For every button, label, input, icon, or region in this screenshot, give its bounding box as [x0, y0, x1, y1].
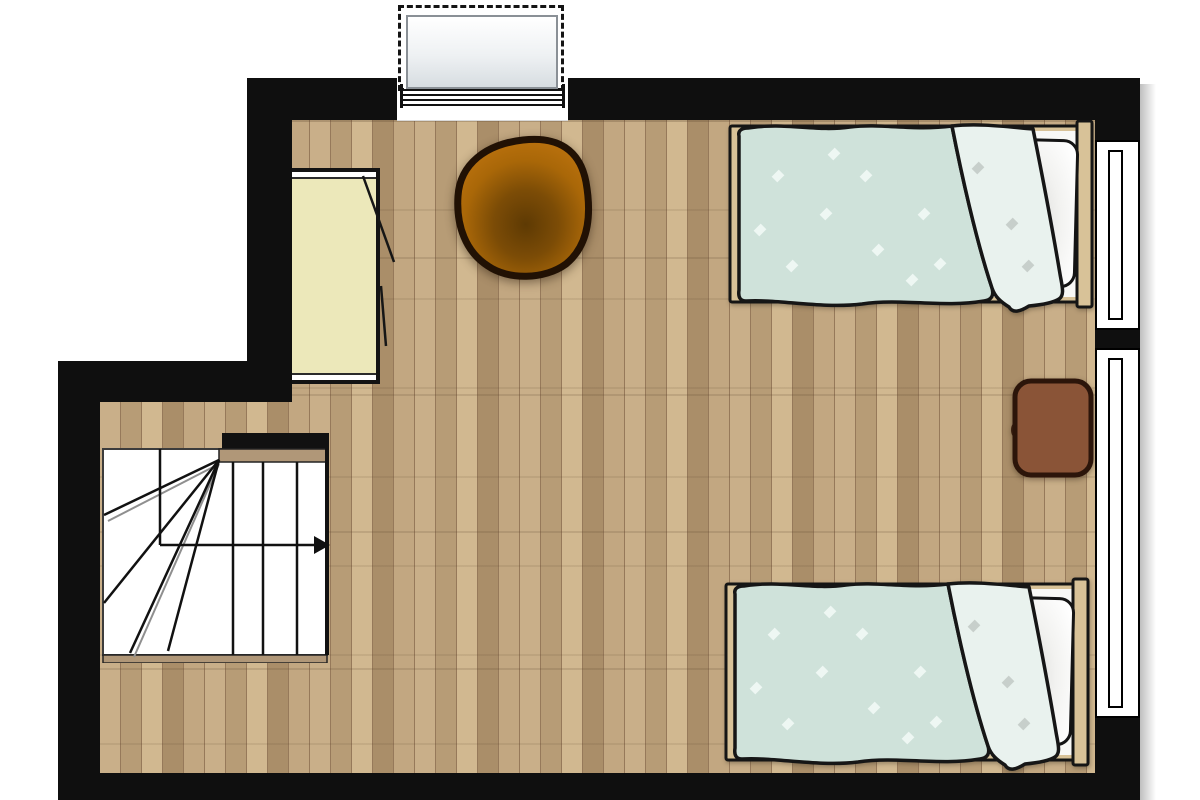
stair-top-wood — [219, 449, 328, 462]
door-sill — [397, 108, 568, 121]
door-track-line — [401, 99, 564, 101]
wardrobe-door-swing-lines — [355, 170, 400, 350]
bed-lower — [722, 576, 1094, 772]
entry-door — [397, 0, 568, 122]
wall-left-lower — [58, 361, 100, 800]
staircase — [100, 433, 330, 663]
door-track-line — [401, 94, 564, 96]
stair-landing-wall — [222, 433, 328, 449]
wall-right-mid — [1095, 330, 1140, 348]
stair-bottom-wood — [103, 655, 327, 663]
window-upper — [1095, 140, 1140, 330]
window-lower — [1095, 348, 1140, 718]
floor-plan — [0, 0, 1200, 800]
door-leaf — [406, 15, 558, 89]
wall-top-right — [568, 78, 1140, 120]
window-glass — [1108, 150, 1123, 320]
door-track-line — [401, 89, 564, 91]
stair-treads — [103, 449, 327, 655]
table-top — [1015, 381, 1091, 475]
drop-shadow — [1140, 84, 1156, 800]
armchair-seat — [458, 139, 589, 276]
window-glass — [1108, 358, 1123, 708]
wall-right-upper — [1095, 78, 1140, 140]
door-jamb-right — [562, 84, 565, 111]
wall-bottom — [58, 773, 1140, 800]
bed-upper — [726, 118, 1098, 314]
door-track-line — [401, 104, 564, 106]
wall-right-lower — [1095, 718, 1140, 800]
wall-left-upper — [247, 78, 292, 402]
door-jamb-left — [400, 84, 403, 111]
armchair — [448, 134, 598, 282]
side-table — [1008, 374, 1098, 482]
